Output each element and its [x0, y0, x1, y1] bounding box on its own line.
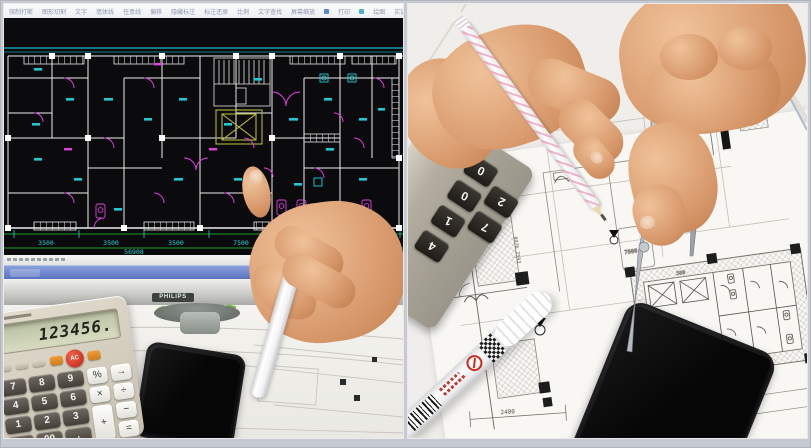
cad-dim-label: 3500	[103, 239, 119, 247]
menu-item: 隐藏标注	[171, 7, 195, 16]
memory-key	[15, 361, 29, 370]
equals-key: =	[118, 419, 140, 438]
digit-key: 5	[31, 392, 59, 411]
plus-key: +	[92, 404, 117, 438]
digit-key: 8	[28, 374, 56, 393]
digit-key: 1	[5, 415, 33, 434]
smartphone-screen	[139, 346, 241, 438]
multiply-key: ×	[89, 385, 111, 404]
digit-key: 00	[36, 430, 64, 438]
ac-key: AC	[65, 348, 85, 368]
percent-key: %	[86, 366, 108, 385]
digit-key: 0	[7, 434, 35, 438]
menu-item: 绘图	[373, 7, 385, 16]
arrow-key: →	[110, 363, 132, 382]
taskbar-button	[10, 269, 40, 277]
orange-key	[87, 350, 101, 361]
draw-icon	[359, 9, 364, 14]
menu-item: 打印	[338, 7, 350, 16]
digit-key: 9	[57, 370, 85, 389]
knuckle	[718, 26, 772, 70]
monitor-stand-arm	[180, 312, 220, 334]
menu-item: 标注还原	[204, 7, 228, 16]
knuckle	[660, 34, 718, 80]
menu-item: 文字查找	[258, 7, 282, 16]
photo-right-blueprint-work: 8976.2593 7000 500	[408, 4, 807, 438]
calculator-left: 123456. AC 7 8 9 4 5 6 1 2 3 0 00 . % → …	[4, 295, 145, 438]
memory-key	[4, 363, 12, 372]
fingernail	[249, 170, 262, 185]
orange-key	[49, 355, 63, 366]
cad-total-dim-label: 56908	[124, 248, 144, 255]
digit-key: 2	[33, 411, 61, 430]
cad-menubar: 强制打断 图形切割 文字 墙体线 任意线 偏移 隐藏标注 标注还原 比例 文字查…	[4, 4, 403, 18]
digit-key: .	[65, 426, 93, 438]
memory-key	[32, 359, 46, 368]
cad-dim-label: 3500	[38, 239, 54, 247]
menu-item: 墙体线	[96, 7, 114, 16]
menu-item: 实训	[394, 7, 403, 16]
digit-key: 6	[59, 388, 87, 407]
menu-item: 屏幕缩放	[291, 7, 315, 16]
cad-dim-label: 7500	[233, 239, 249, 247]
two-panel-photo-collage: 强制打断 图形切割 文字 墙体线 任意线 偏移 隐藏标注 标注还原 比例 文字查…	[0, 0, 811, 448]
cad-dim-label: 3500	[168, 239, 184, 247]
minus-key: −	[115, 400, 137, 419]
photo-left-cad-monitor: 强制打断 图形切割 文字 墙体线 任意线 偏移 隐藏标注 标注还原 比例 文字查…	[4, 4, 403, 438]
menu-item: 图形切割	[42, 7, 66, 16]
menu-item: 强制打断	[9, 7, 33, 16]
divide-key: ÷	[113, 382, 135, 401]
menu-item: 任意线	[123, 7, 141, 16]
command-text	[7, 258, 67, 261]
menu-item: 文字	[75, 7, 87, 16]
smartphone-left	[133, 341, 247, 438]
digit-key: 3	[62, 407, 90, 426]
digit-key: 7	[4, 378, 27, 397]
menu-item: 偏移	[150, 7, 162, 16]
print-icon	[324, 9, 329, 14]
digit-key: 4	[4, 396, 30, 415]
monitor-brand-logo: PHILIPS	[152, 293, 194, 302]
menu-item: 比例	[237, 7, 249, 16]
